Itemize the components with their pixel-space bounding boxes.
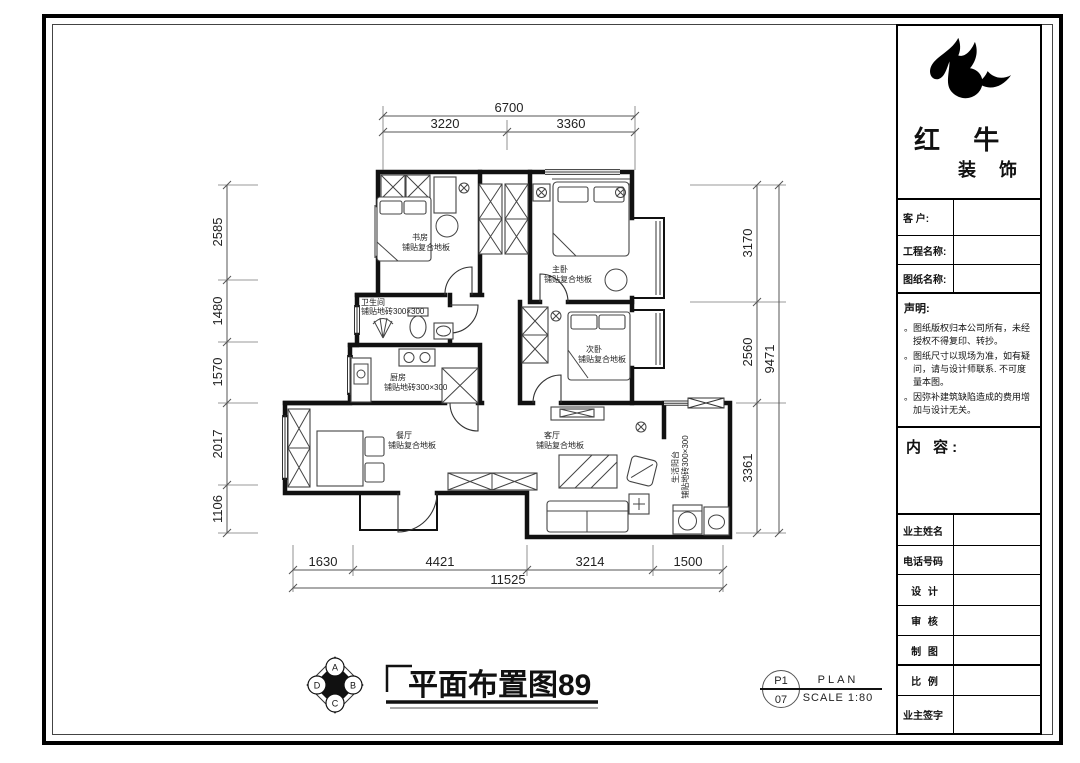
bedroom2-furniture — [522, 307, 630, 380]
study-door — [445, 267, 472, 295]
room-label-master: 主卧 — [552, 264, 568, 274]
content-section: 内 容: — [898, 428, 1040, 515]
living-furniture — [547, 407, 658, 532]
field-owner-name: 业主姓名 — [898, 515, 1040, 546]
field-scale-value[interactable] — [954, 666, 1040, 695]
room-label-dining: 餐厅 — [396, 431, 412, 440]
svg-text:2017: 2017 — [210, 430, 225, 459]
field-owner-name-value[interactable] — [954, 515, 1040, 545]
brand-suffix: 装 饰 — [958, 156, 1026, 182]
room-label-balcony: 生活阳台 — [670, 451, 680, 483]
field-phone: 电话号码 — [898, 546, 1040, 575]
field-designer-value[interactable] — [954, 575, 1040, 605]
svg-text:铺贴复合地板: 铺贴复合地板 — [388, 440, 436, 450]
compass-icon: A B C D — [307, 657, 363, 713]
compass-letter-bottom: C — [332, 699, 339, 709]
compass-letter-top: A — [332, 663, 338, 673]
bathroom-door — [450, 305, 478, 333]
svg-text:4421: 4421 — [426, 554, 455, 569]
room-label-kitchen: 厨房 — [390, 372, 406, 382]
compass-letter-left: D — [314, 681, 321, 691]
svg-text:铺贴复合地板: 铺贴复合地板 — [544, 274, 592, 284]
field-project-name: 工程名称: — [898, 236, 1040, 265]
kitchen-door — [450, 403, 478, 431]
dim-bottom-total: 11525 — [490, 572, 525, 587]
field-reviewer: 审 核 — [898, 606, 1040, 636]
content-heading: 内 容: — [906, 436, 1040, 457]
compass-letter-right: B — [350, 681, 356, 691]
dim-right: 3170 2560 3361 9471 — [690, 181, 786, 537]
svg-text:2585: 2585 — [210, 218, 225, 247]
svg-text:07: 07 — [775, 694, 787, 706]
field-scale: 比 例 — [898, 666, 1040, 696]
balcony-fixtures — [673, 505, 729, 535]
svg-text:3360: 3360 — [557, 116, 586, 131]
drawing-title: 平面布置图89 — [408, 669, 591, 702]
bedroom2-door — [533, 375, 561, 403]
statement-heading: 声明: — [904, 300, 1034, 316]
svg-text:1480: 1480 — [210, 297, 225, 326]
statement-item: 。因弥补建筑缺陷造成的费用增加与设计无关。 — [904, 391, 1034, 417]
svg-text:铺贴地砖300×300: 铺贴地砖300×300 — [361, 306, 425, 316]
room-label-bedroom2: 次卧 — [586, 344, 602, 354]
sheet-number: P1 — [774, 675, 787, 687]
hallway-closets — [479, 184, 528, 254]
field-owner-signature-value[interactable] — [954, 696, 1040, 733]
bull-logo-icon — [916, 34, 1026, 122]
svg-text:1570: 1570 — [210, 358, 225, 387]
room-label-study: 书房 — [412, 232, 428, 242]
company-logo: 红 牛 装 饰 — [898, 26, 1040, 200]
svg-text:1630: 1630 — [309, 554, 338, 569]
svg-text:3361: 3361 — [740, 454, 755, 483]
dim-top: 6700 3220 3360 — [379, 100, 639, 170]
field-drafter: 制 图 — [898, 636, 1040, 666]
furniture — [288, 175, 729, 535]
field-sheet-name: 图纸名称: — [898, 265, 1040, 294]
svg-text:3220: 3220 — [431, 116, 460, 131]
field-sheet-name-value[interactable] — [954, 265, 1040, 292]
room-label-bathroom: 卫生间 — [361, 297, 385, 307]
svg-text:铺贴地砖300×300: 铺贴地砖300×300 — [384, 382, 448, 392]
field-designer: 设 计 — [898, 575, 1040, 606]
svg-text:3214: 3214 — [576, 554, 605, 569]
field-project-name-value[interactable] — [954, 236, 1040, 264]
room-label-living: 客厅 — [544, 430, 560, 440]
bay-windows — [632, 218, 664, 368]
svg-text:1500: 1500 — [674, 554, 703, 569]
dim-left: 2585 1480 1570 2017 1106 — [210, 181, 258, 537]
field-reviewer-value[interactable] — [954, 606, 1040, 635]
statement-section: 声明: 。图纸版权归本公司所有，未经授权不得复印、转抄。 。图纸尺寸以现场为准，… — [898, 294, 1040, 428]
field-customer-value[interactable] — [954, 200, 1040, 235]
sheet-type: PLAN — [818, 674, 859, 686]
dining-furniture — [288, 409, 384, 487]
sheet-scale: SCALE 1:80 — [803, 692, 874, 704]
svg-text:1106: 1106 — [210, 495, 225, 523]
svg-text:铺贴地砖300×300: 铺贴地砖300×300 — [680, 435, 690, 499]
drawing-sheet: 书房 铺贴复合地板 主卧 铺贴复合地板 次卧 铺贴复合地板 卫生间 铺贴地砖30… — [0, 0, 1080, 763]
shoe-cabinet — [448, 473, 537, 490]
floor-plan-svg: 书房 铺贴复合地板 主卧 铺贴复合地板 次卧 铺贴复合地板 卫生间 铺贴地砖30… — [52, 24, 896, 735]
dim-top-total: 6700 — [495, 100, 524, 115]
entry-door — [398, 493, 437, 532]
dim-right-total: 9471 — [762, 345, 777, 374]
kitchen-fixtures — [351, 349, 478, 403]
svg-text:铺贴复合地板: 铺贴复合地板 — [402, 242, 450, 252]
drawing-title-group: 平面布置图89 — [386, 666, 598, 708]
dim-bottom: 1630 4421 3214 1500 11525 — [289, 545, 727, 592]
field-owner-signature: 业主签字 — [898, 696, 1040, 733]
svg-text:3170: 3170 — [740, 229, 755, 258]
statement-item: 。图纸版权归本公司所有，未经授权不得复印、转抄。 — [904, 322, 1034, 348]
svg-text:铺贴复合地板: 铺贴复合地板 — [578, 354, 626, 364]
field-customer: 客 户: — [898, 200, 1040, 236]
field-drafter-value[interactable] — [954, 636, 1040, 664]
statement-item: 。图纸尺寸以现场为准，如有疑问，请与设计师联系. 不可度量本图。 — [904, 350, 1034, 389]
field-phone-value[interactable] — [954, 546, 1040, 574]
title-block: 红 牛 装 饰 客 户: 工程名称: 图纸名称: 声明: 。图纸版权归本公司所有… — [896, 24, 1042, 735]
svg-text:铺贴复合地板: 铺贴复合地板 — [536, 440, 584, 450]
svg-text:2560: 2560 — [740, 338, 755, 367]
sheet-number-group: P1 07 PLAN SCALE 1:80 — [760, 671, 882, 708]
brand-name: 红 牛 — [914, 120, 1012, 157]
